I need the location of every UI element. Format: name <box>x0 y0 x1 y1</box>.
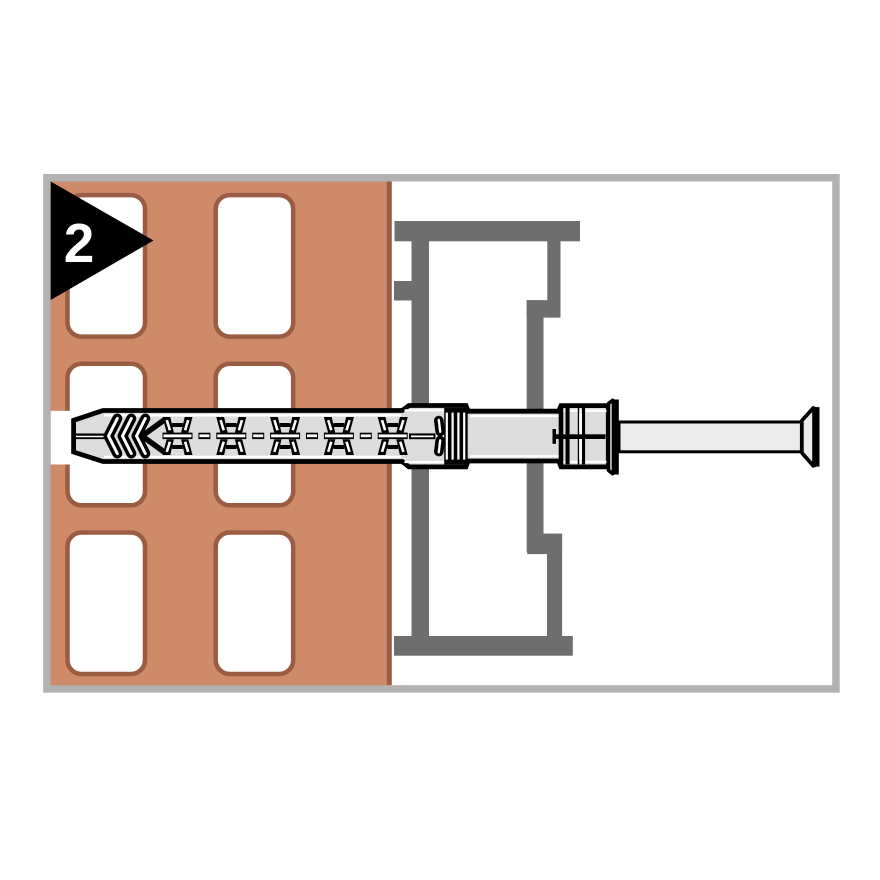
svg-text:2: 2 <box>64 212 95 274</box>
